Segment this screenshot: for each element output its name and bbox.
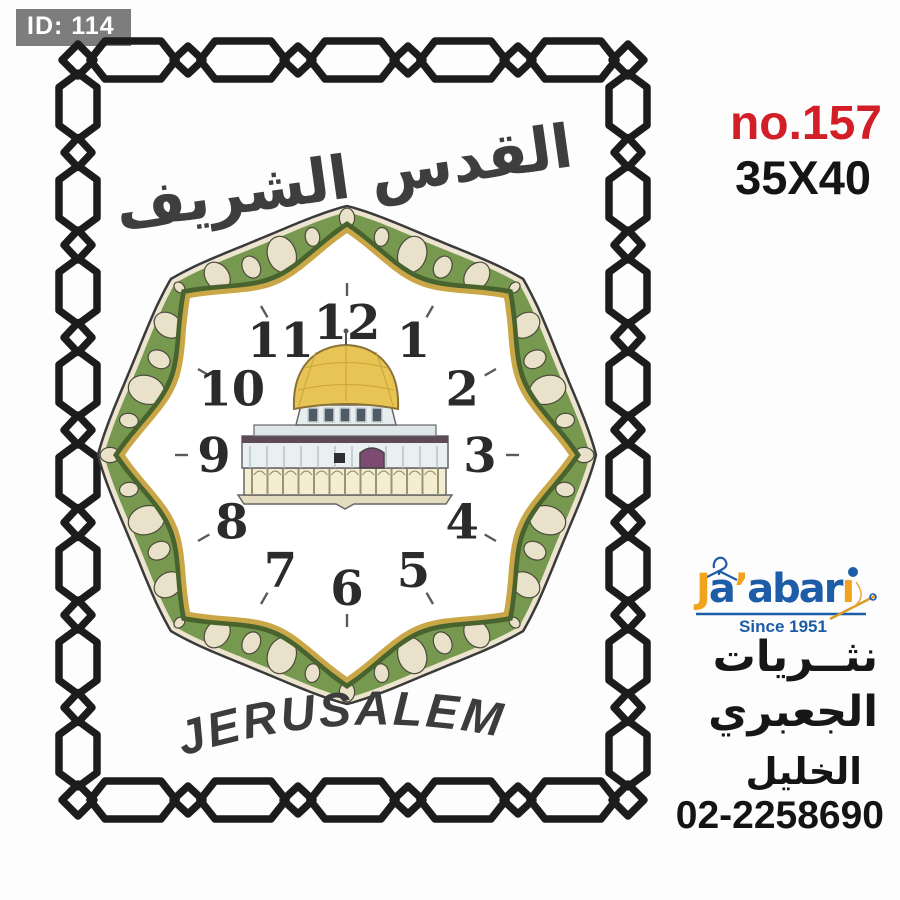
- clock-number-5: 5: [397, 543, 430, 599]
- clock-artwork: 121234567891011 القدس الشريف JERUSALEM: [40, 30, 660, 840]
- vendor-name-arabic: نثــريات الجعبري: [708, 630, 878, 740]
- clock-number-8: 8: [215, 495, 248, 551]
- vendor-logo: Ja’abarı Since 1951: [688, 542, 880, 637]
- clock-number-9: 9: [197, 428, 230, 484]
- clock-number-7: 7: [264, 543, 297, 599]
- clock-number-12: 12: [314, 295, 381, 351]
- logo-since: Since 1951: [739, 617, 827, 636]
- clock-number-6: 6: [330, 561, 363, 617]
- clock-number-10: 10: [198, 362, 265, 418]
- clock-number-1: 1: [397, 313, 430, 369]
- catalog-page: ID: 114 121234567891011 القدس الشريف JER…: [0, 0, 900, 900]
- vendor-phone: 02-2258690: [676, 794, 884, 838]
- clock-number-11: 11: [247, 313, 314, 369]
- clock-number-3: 3: [463, 428, 496, 484]
- vendor-city: الخليل: [746, 750, 862, 793]
- vendor-name-line1: نثــريات: [708, 630, 878, 685]
- product-size: 35X40: [735, 150, 871, 205]
- vendor-name-line2: الجعبري: [708, 685, 878, 740]
- clock-number-4: 4: [445, 495, 478, 551]
- logo-i-dot: [848, 567, 858, 577]
- jerusalem-label: JERUSALEM: [171, 683, 509, 767]
- product-number: no.157: [730, 96, 882, 151]
- clock-number-2: 2: [445, 362, 478, 418]
- logo-wordmark: Ja’abarı: [693, 566, 853, 612]
